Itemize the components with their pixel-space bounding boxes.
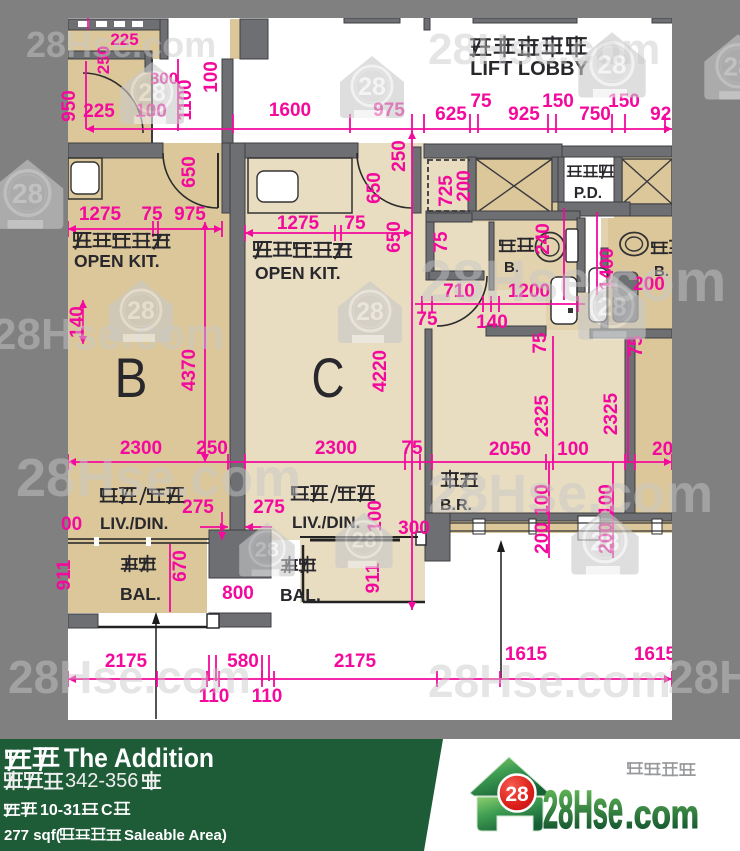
svg-text:P.D.: P.D. (574, 185, 602, 202)
svg-text:28: 28 (590, 526, 619, 556)
svg-text:2300: 2300 (315, 438, 357, 459)
svg-text:28: 28 (255, 536, 279, 561)
svg-text:28: 28 (597, 291, 626, 321)
svg-text:28: 28 (723, 51, 740, 81)
svg-text:911: 911 (54, 559, 75, 590)
svg-text:2325: 2325 (601, 392, 622, 435)
svg-text:OPEN KIT.: OPEN KIT. (74, 251, 160, 271)
svg-text:28Hse.com: 28Hse.com (428, 655, 671, 707)
svg-text:28Hse.com: 28Hse.com (16, 448, 301, 508)
svg-text:650: 650 (384, 221, 405, 253)
svg-text:28: 28 (356, 298, 384, 326)
svg-text:10-31: 10-31 (40, 802, 81, 819)
svg-text:75: 75 (141, 204, 163, 225)
svg-text:75: 75 (530, 332, 551, 354)
svg-text:00: 00 (61, 514, 82, 535)
svg-text:200: 200 (532, 522, 553, 554)
svg-text:28: 28 (358, 73, 386, 101)
svg-text:625: 625 (435, 104, 467, 125)
svg-text:28: 28 (352, 527, 377, 552)
svg-text:277 sqf(: 277 sqf( (4, 827, 61, 844)
svg-text:140: 140 (476, 312, 508, 333)
svg-text:1275: 1275 (79, 204, 122, 225)
svg-text:1600: 1600 (269, 100, 311, 121)
svg-text:C: C (101, 802, 113, 819)
svg-text:28Hse.com: 28Hse.com (8, 651, 251, 703)
svg-text:28Hse.com: 28Hse.com (420, 249, 726, 314)
svg-text:100: 100 (557, 439, 589, 460)
svg-text:925: 925 (508, 104, 540, 125)
svg-text:The Addition: The Addition (64, 743, 214, 773)
svg-text:670: 670 (170, 550, 191, 582)
svg-text:650: 650 (179, 156, 200, 188)
svg-text:28Hse.com: 28Hse.com (26, 24, 216, 65)
svg-text:650: 650 (364, 172, 385, 204)
svg-text:1275: 1275 (277, 213, 320, 234)
svg-text:250: 250 (389, 140, 410, 172)
svg-text:200: 200 (454, 170, 475, 202)
svg-text:28Hse.com: 28Hse.com (428, 464, 713, 524)
svg-text:OPEN KIT.: OPEN KIT. (255, 263, 341, 283)
svg-text:28: 28 (127, 297, 155, 325)
svg-text:2050: 2050 (489, 439, 531, 460)
svg-text:C: C (312, 346, 345, 409)
svg-text:Saleable Area): Saleable Area) (124, 827, 227, 844)
svg-text:75: 75 (470, 91, 492, 112)
svg-text:.com: .com (625, 793, 699, 837)
svg-text:28: 28 (138, 79, 166, 107)
svg-text:75: 75 (344, 213, 366, 234)
svg-text:150: 150 (542, 91, 574, 112)
svg-text:28Hse.com: 28Hse.com (668, 651, 740, 703)
svg-text:28Hse: 28Hse (543, 780, 623, 840)
svg-text:2325: 2325 (532, 394, 553, 437)
svg-text:300: 300 (398, 518, 430, 539)
svg-text:342-356: 342-356 (65, 770, 138, 792)
svg-text:LIV./DIN.: LIV./DIN. (100, 514, 168, 533)
svg-text:100: 100 (201, 61, 222, 93)
svg-text:28: 28 (12, 178, 43, 209)
svg-text:75: 75 (401, 438, 423, 459)
svg-text:750: 750 (579, 104, 611, 125)
svg-text:28: 28 (505, 783, 529, 806)
svg-text:BAL.: BAL. (120, 584, 161, 604)
svg-text:950: 950 (59, 90, 80, 122)
svg-text:2175: 2175 (334, 651, 377, 672)
svg-text:4220: 4220 (370, 350, 391, 392)
svg-text:110: 110 (252, 686, 283, 707)
svg-text:28: 28 (597, 49, 626, 79)
svg-text:800: 800 (222, 583, 254, 604)
svg-text:BAL.: BAL. (280, 585, 321, 605)
svg-text:225: 225 (83, 101, 115, 122)
svg-text:975: 975 (174, 204, 206, 225)
